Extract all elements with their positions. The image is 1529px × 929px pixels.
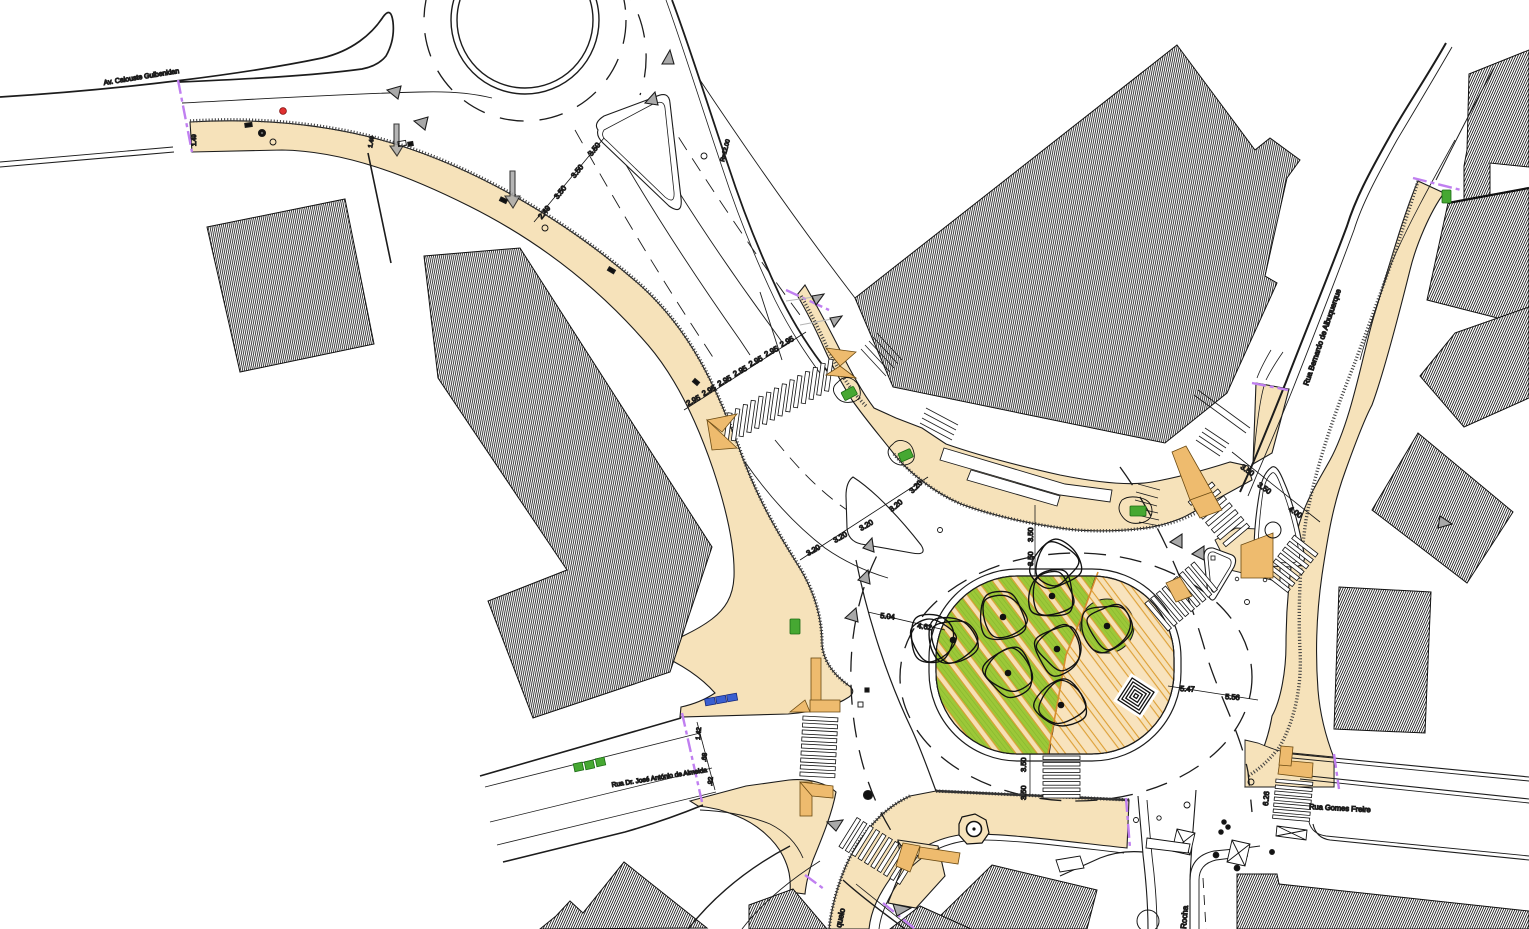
svg-text:6.26: 6.26 bbox=[1261, 791, 1271, 806]
svg-text:3.50: 3.50 bbox=[1026, 551, 1035, 566]
svg-text:3.50: 3.50 bbox=[1026, 527, 1035, 542]
svg-text:3.50: 3.50 bbox=[1019, 785, 1028, 800]
svg-text:3.50: 3.50 bbox=[1019, 757, 1028, 772]
svg-text:1.49: 1.49 bbox=[192, 134, 198, 146]
